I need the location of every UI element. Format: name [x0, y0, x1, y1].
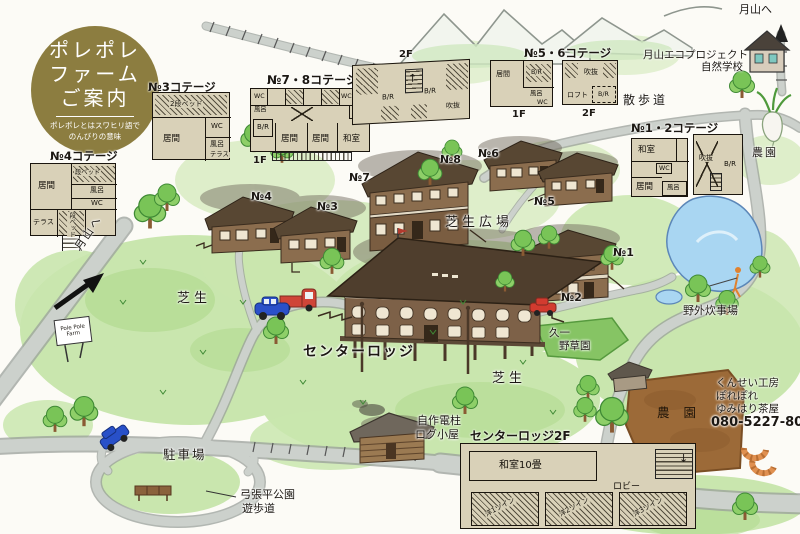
room-label: 居間: [38, 182, 55, 191]
room-label: 吹抜: [445, 102, 461, 110]
farm-signboard: Pole Pole Farm: [54, 316, 93, 346]
room-label: B/R: [423, 88, 437, 96]
room-label: ロフト: [567, 92, 588, 99]
parking-label: 駐車場: [163, 448, 207, 462]
smokehouse-label2: ぽれぽれ: [716, 390, 758, 402]
wall: [523, 61, 524, 87]
hatch: [603, 63, 616, 78]
room-label: 段ベッド: [67, 212, 75, 237]
outdoor-cooking-label: 野外炊事場: [683, 305, 738, 318]
plan-no12-1f: 和室 WC 居間 風呂: [631, 138, 688, 197]
plan-no56-1f-label: 1F: [512, 109, 526, 120]
lawn-plaza-label: 芝生広場: [445, 216, 513, 231]
room-label: 段ベッド: [74, 170, 101, 176]
room-label: 風呂: [89, 187, 105, 194]
smokehouse-label1: くんせい工房: [716, 377, 779, 389]
plan-no56-2f-label: 2F: [582, 108, 596, 119]
marker-no2: №2: [561, 292, 582, 305]
hatch: [291, 107, 313, 121]
plan-no56-title: №5・6コテージ: [524, 45, 611, 61]
center-lodge-label: センターロッジ: [303, 344, 415, 360]
room-label: 吹抜: [583, 69, 599, 76]
farm-guide-map: ポレポレ ファーム ご案内 ポレポレとはスワヒリ語で のんびりの意味 №4コテー…: [0, 0, 800, 534]
park-label1: 弓張平公園: [240, 489, 295, 502]
room-label: 居間: [312, 135, 329, 144]
logo-subtitle1: ポレポレとはスワヒリ語で: [50, 120, 140, 131]
to-gassan-top-label: 月山へ: [739, 4, 772, 17]
wild-garden-label2: 野草園: [559, 340, 591, 352]
phone-number: 080-5227-8059: [711, 416, 800, 431]
room-label: 風呂: [209, 141, 225, 148]
guest-room: [619, 492, 687, 526]
park-label2: 遊歩道: [242, 503, 275, 516]
room-label: 居間: [636, 183, 653, 192]
farm-field-label: 農 園: [657, 406, 701, 420]
logo-divider: [56, 116, 134, 117]
plan-no78-title: №7・8コテージ: [267, 71, 358, 88]
log-cabin-label2: ログ小屋: [415, 429, 459, 442]
smoked-food-icon: [744, 448, 774, 475]
room-label: B/R: [597, 92, 610, 98]
plan-no56-1f: 居間 B/R 風呂 WC: [490, 60, 553, 107]
hatch: [565, 63, 578, 78]
logo-line1: ポレポレ: [49, 38, 141, 62]
room-label: B/R: [530, 70, 543, 76]
logo-line2: ファーム: [49, 62, 140, 86]
wall: [205, 137, 231, 138]
room-label: 風呂: [529, 91, 544, 97]
lawn-left-label: 芝生: [177, 292, 211, 307]
room-label: 和室10畳: [499, 461, 542, 471]
plan-no78-1f-label: 1F: [253, 155, 267, 166]
room-label: 和室: [638, 146, 655, 155]
hatch: [322, 90, 339, 104]
logo-line3: ご案内: [61, 86, 130, 110]
room-label: B/R: [381, 94, 395, 102]
room-label: WC: [537, 100, 548, 106]
plan-no56-2f: 吹抜 ロフト B/R: [562, 60, 618, 105]
wall: [275, 123, 276, 153]
wall: [153, 117, 231, 118]
walking-path-label: 散歩道: [623, 94, 668, 108]
room-label: 2段ベッド: [169, 101, 203, 108]
room-label: WC: [341, 94, 352, 100]
wild-garden-label1: 久一: [549, 327, 570, 339]
plan-no78-2f: ↑ B/R B/R 吹抜: [352, 59, 470, 125]
lawn-bottom-label: 芝生: [492, 372, 526, 387]
room-label: 吹抜: [698, 155, 714, 162]
wall: [632, 177, 662, 178]
plan-no78-deck: [272, 152, 352, 161]
smokehouse-label3: ゆみはり茶屋: [716, 403, 779, 415]
farm-logo: ポレポレ ファーム ご案内 ポレポレとはスワヒリ語で のんびりの意味: [31, 26, 159, 154]
room-label: B/R: [256, 124, 270, 131]
wall: [267, 89, 268, 105]
wall: [303, 89, 304, 105]
farm-right-label: 農園: [752, 147, 778, 160]
room-label: WC: [254, 94, 265, 100]
marker-no6: №6: [478, 148, 499, 161]
room-label: 居間: [163, 135, 180, 144]
wall: [676, 139, 677, 161]
plan-no78-2f-label: 2F: [399, 49, 413, 60]
guest-room: [545, 492, 613, 526]
room-label: テラス: [209, 152, 230, 158]
marker-no8: №8: [440, 154, 461, 167]
wall: [205, 117, 206, 161]
room-label: WC: [659, 166, 670, 172]
plan-no4: 居間 段ベッド 風呂 WC テラス 段ベッド: [30, 163, 116, 236]
guest-room: [471, 492, 539, 526]
marker-no1: №1: [613, 247, 634, 260]
hatch: [411, 104, 427, 119]
plan-no3: 2段ベッド WC 居間 風呂 テラス: [152, 92, 230, 160]
nature-school-label: 自然学校: [701, 61, 743, 73]
room-label: WC: [211, 123, 223, 130]
room-label: B/R: [724, 161, 736, 168]
room-label: ロビー: [613, 483, 640, 492]
hatch: [286, 90, 303, 104]
room-label: 居間: [496, 71, 510, 78]
marker-no7: №7: [349, 172, 370, 185]
stairs-up-arrow-icon: ↑: [408, 73, 417, 84]
plan-lodge2f-title: センターロッジ2F: [470, 427, 571, 444]
plan-no12-2f: 吹抜 B/R: [693, 134, 743, 195]
room-label: 風呂: [666, 185, 681, 191]
hatch: [446, 63, 468, 90]
wall: [337, 123, 338, 153]
wall: [307, 123, 308, 153]
plan-lodge2f: 和室10畳 ↓ ロビー 洋1ツイン 洋2ツイン 洋3ツイン: [460, 443, 696, 529]
stairs: [710, 173, 722, 191]
room-label: WC: [91, 200, 103, 207]
log-cabin-label1: 自作電柱: [417, 415, 461, 428]
eco-project-label: 月山エコプロジェクト: [643, 49, 748, 61]
wall: [523, 87, 554, 88]
room-label: 和室: [343, 135, 360, 144]
marker-no5: №5: [534, 196, 555, 209]
room-label: 風呂: [253, 107, 268, 113]
hatch: [356, 68, 378, 95]
stairs-down-arrow-icon: ↓: [679, 453, 688, 464]
marker-no3: №3: [317, 201, 338, 214]
room-label: 居間: [281, 135, 298, 144]
hatch: [381, 106, 399, 121]
plan-no4-title: №4コテージ: [50, 148, 118, 164]
room-label: テラス: [33, 219, 54, 226]
marker-no4: №4: [251, 191, 272, 204]
logo-subtitle2: のんびりの意味: [69, 131, 122, 142]
